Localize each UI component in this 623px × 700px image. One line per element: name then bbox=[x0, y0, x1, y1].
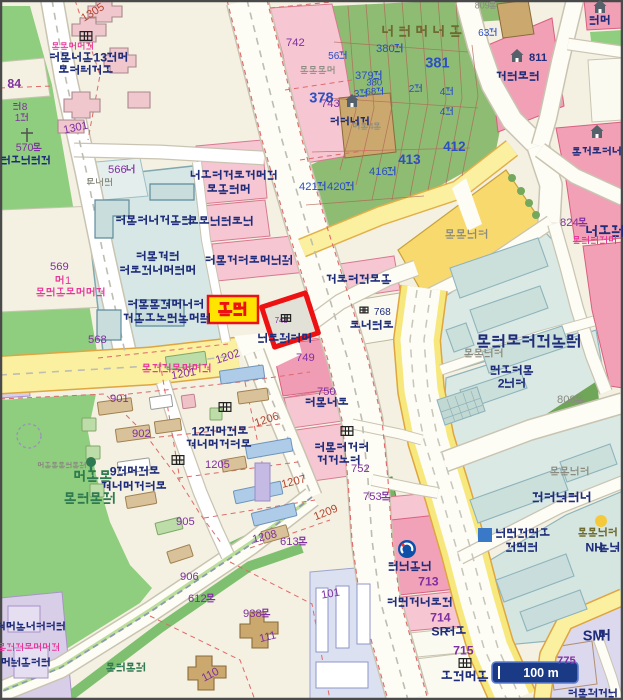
svg-text:811: 811 bbox=[529, 52, 547, 64]
svg-text:100 m: 100 m bbox=[523, 666, 558, 680]
svg-text:1205: 1205 bbox=[205, 459, 230, 471]
svg-text:84: 84 bbox=[7, 77, 21, 91]
svg-text:8: 8 bbox=[22, 102, 28, 113]
svg-text:902: 902 bbox=[132, 428, 151, 440]
svg-text:906: 906 bbox=[180, 571, 199, 583]
svg-text:4: 4 bbox=[369, 121, 374, 131]
svg-text:416: 416 bbox=[369, 166, 388, 178]
svg-text:715: 715 bbox=[453, 644, 474, 658]
svg-text:1: 1 bbox=[65, 275, 71, 287]
svg-text:808: 808 bbox=[557, 394, 576, 406]
svg-text:1: 1 bbox=[15, 113, 21, 124]
svg-text:901: 901 bbox=[110, 393, 129, 405]
svg-text:775: 775 bbox=[557, 655, 576, 667]
svg-text:613: 613 bbox=[280, 536, 299, 548]
svg-text:56: 56 bbox=[328, 51, 340, 62]
svg-text:750: 750 bbox=[317, 386, 336, 398]
svg-text:378: 378 bbox=[309, 90, 333, 106]
svg-text:768: 768 bbox=[374, 307, 391, 318]
svg-text:753: 753 bbox=[363, 491, 382, 503]
svg-text:2: 2 bbox=[498, 377, 505, 391]
svg-text:566: 566 bbox=[108, 164, 127, 176]
svg-text:9: 9 bbox=[110, 465, 117, 479]
svg-text:380: 380 bbox=[376, 43, 395, 55]
svg-text:570: 570 bbox=[16, 142, 34, 154]
svg-text:749: 749 bbox=[296, 352, 315, 364]
svg-text:4: 4 bbox=[440, 87, 446, 98]
svg-text:612: 612 bbox=[188, 593, 207, 605]
svg-text:381: 381 bbox=[425, 55, 449, 71]
svg-text:421: 421 bbox=[299, 181, 318, 193]
svg-text:63: 63 bbox=[478, 28, 490, 39]
svg-text:4: 4 bbox=[440, 107, 446, 118]
svg-text:412: 412 bbox=[443, 139, 465, 154]
svg-text:714: 714 bbox=[430, 611, 451, 625]
svg-text:569: 569 bbox=[50, 261, 69, 273]
svg-text:905: 905 bbox=[176, 516, 195, 528]
svg-text:752: 752 bbox=[351, 463, 370, 475]
svg-text:413: 413 bbox=[398, 152, 420, 167]
svg-text:568: 568 bbox=[88, 334, 107, 346]
svg-text:12: 12 bbox=[191, 425, 205, 439]
svg-text:713: 713 bbox=[418, 575, 439, 589]
svg-text:938: 938 bbox=[243, 608, 262, 620]
svg-text:13: 13 bbox=[93, 51, 107, 65]
svg-text:824: 824 bbox=[560, 217, 579, 229]
svg-text:2: 2 bbox=[409, 84, 415, 95]
svg-text:420: 420 bbox=[327, 181, 346, 193]
svg-text:68: 68 bbox=[366, 87, 377, 98]
svg-text:742: 742 bbox=[286, 37, 305, 49]
svg-text:809: 809 bbox=[475, 0, 490, 10]
